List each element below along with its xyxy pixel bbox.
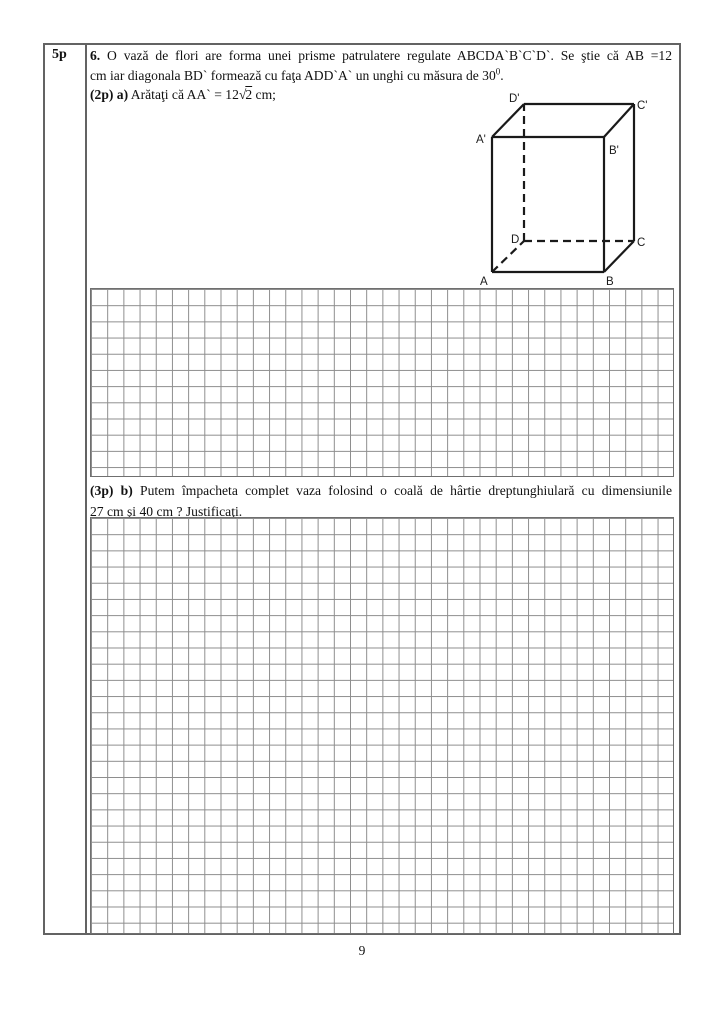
prism-solid-edges xyxy=(492,104,634,272)
statement-line-1-text: O vază de flori are forma unei prisme pa… xyxy=(107,48,672,63)
vertex-label-d: D xyxy=(511,234,519,246)
statement-line-2-period: . xyxy=(500,68,503,83)
part-a-text: Arătaţi că AA` = 12 xyxy=(131,87,239,102)
statement-line-2-text: cm iar diagonala BD` formează cu faţa AD… xyxy=(90,68,496,83)
prism-figure: A B C D A' B' C' D' xyxy=(458,85,680,297)
vertex-label-a: A xyxy=(480,276,488,288)
part-b-line-1: (3p) b) Putem împacheta complet vaza fol… xyxy=(90,480,672,501)
problem-number: 6. xyxy=(90,48,100,63)
prism-hidden-edges xyxy=(492,104,634,272)
work-grid-part-a xyxy=(90,288,674,477)
prism-drawing: A B C D A' B' C' D' xyxy=(458,85,680,297)
points-value: 5p xyxy=(45,45,85,63)
part-b-line-1-text: Putem împacheta complet vaza folosind o … xyxy=(140,483,672,498)
vertex-label-b: B xyxy=(606,276,614,288)
work-grid-part-b xyxy=(90,517,674,934)
part-a-text-end: cm; xyxy=(252,87,276,102)
statement-line-2: cm iar diagonala BD` formează cu faţa AD… xyxy=(90,66,672,86)
page-number: 9 xyxy=(0,943,724,959)
vertex-label-c-prime: C' xyxy=(637,100,648,112)
vertex-label-b-prime: B' xyxy=(609,145,619,157)
vertex-label-d-prime: D' xyxy=(509,93,520,105)
points-column: 5p xyxy=(45,45,87,933)
part-a-label: (2p) a) xyxy=(90,87,128,102)
vertex-label-c: C xyxy=(637,237,645,249)
vertex-label-a-prime: A' xyxy=(476,134,486,146)
document-page: 5p 6. O vază de flori are forma unei pri… xyxy=(0,0,724,1024)
part-b-statement: (3p) b) Putem împacheta complet vaza fol… xyxy=(90,480,672,522)
statement-line-1: 6. O vază de flori are forma unei prisme… xyxy=(90,46,672,66)
part-b-label: (3p) b) xyxy=(90,483,133,498)
